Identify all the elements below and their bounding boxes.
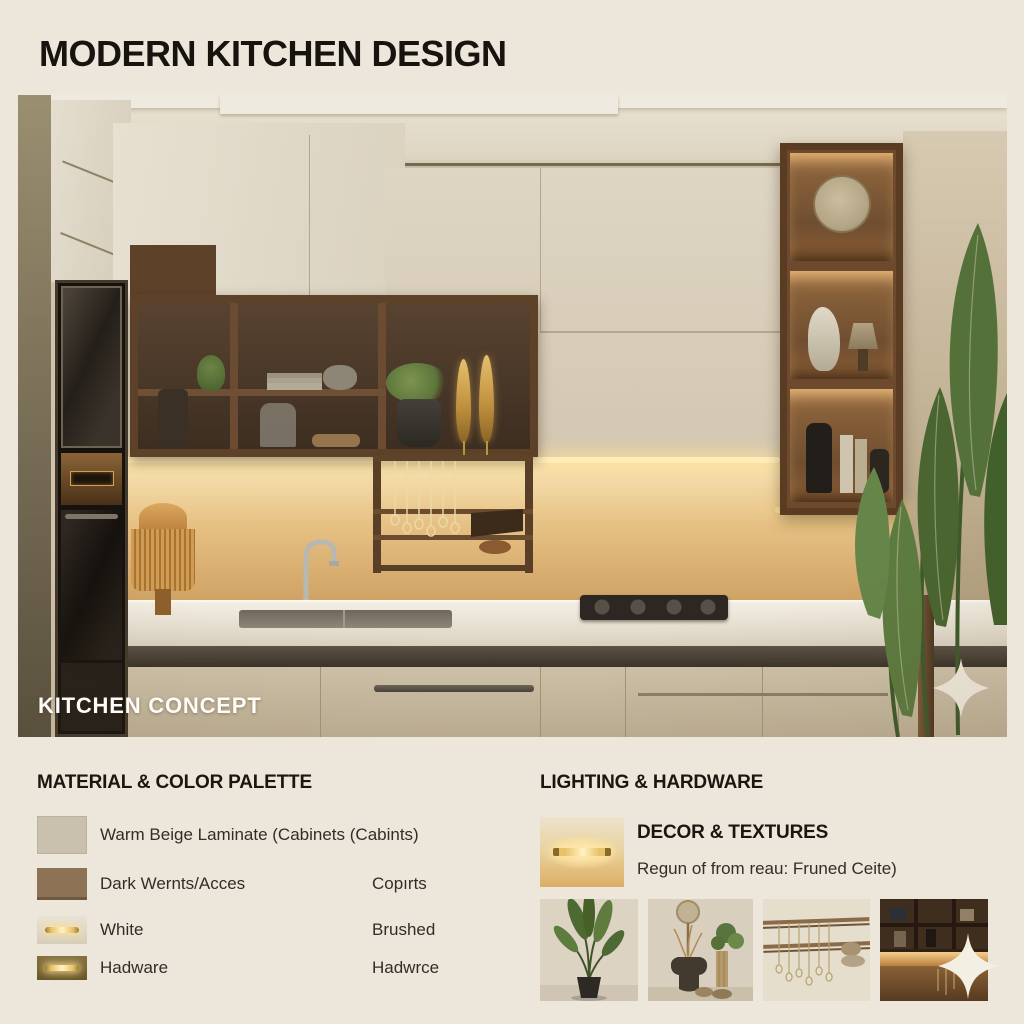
palette-label: Hadware <box>100 958 168 978</box>
wall-sconce-tile <box>540 817 624 887</box>
palette-note: Hadwrce <box>372 958 439 978</box>
page-title: MODERN KITCHEN DESIGN <box>39 33 507 75</box>
thumbnail-vases-decor <box>648 899 753 1001</box>
palette-row: Hadware Hadwrce <box>37 956 168 980</box>
palette-label: Warm Beige Laminate (Cabinets (Cabints) <box>100 825 419 845</box>
decor-caption: Regun of from reau: Fruned Ceite) <box>637 859 897 879</box>
swatch-dark-walnut <box>37 868 87 900</box>
kitchen-photo: KITCHEN CONCEPT <box>18 95 1007 737</box>
design-board: MODERN KITCHEN DESIGN <box>0 0 1024 1024</box>
brass-handle-icon <box>45 965 79 971</box>
decor-textures-heading: DECOR & TEXTURES <box>637 822 828 844</box>
palette-label: Dark Wernts/Acces <box>100 874 245 894</box>
swatch-brass-hardware <box>37 956 87 980</box>
brass-handle-icon <box>45 927 79 933</box>
material-palette-heading: MATERIAL & COLOR PALETTE <box>37 772 312 794</box>
palette-row: White Brushed <box>37 916 143 944</box>
thumbnail-potted-plant <box>540 899 638 1001</box>
lighting-hardware-heading: LIGHTING & HARDWARE <box>540 772 763 794</box>
swatch-white-handle <box>37 916 87 944</box>
photo-caption: KITCHEN CONCEPT <box>38 693 261 719</box>
photo-vignette <box>18 95 1007 737</box>
palette-row: Dark Wernts/Acces Copırts <box>37 868 245 900</box>
palette-row: Warm Beige Laminate (Cabinets (Cabints) <box>37 816 419 854</box>
thumbnail-hanging-necklaces <box>763 899 870 1001</box>
palette-note: Brushed <box>372 920 435 940</box>
swatch-warm-beige <box>37 816 87 854</box>
decor-thumbnails <box>540 899 988 1001</box>
palette-label: White <box>100 920 143 940</box>
sparkle-icon <box>938 933 998 999</box>
brass-sconce-icon <box>553 848 611 856</box>
palette-note: Copırts <box>372 874 427 894</box>
